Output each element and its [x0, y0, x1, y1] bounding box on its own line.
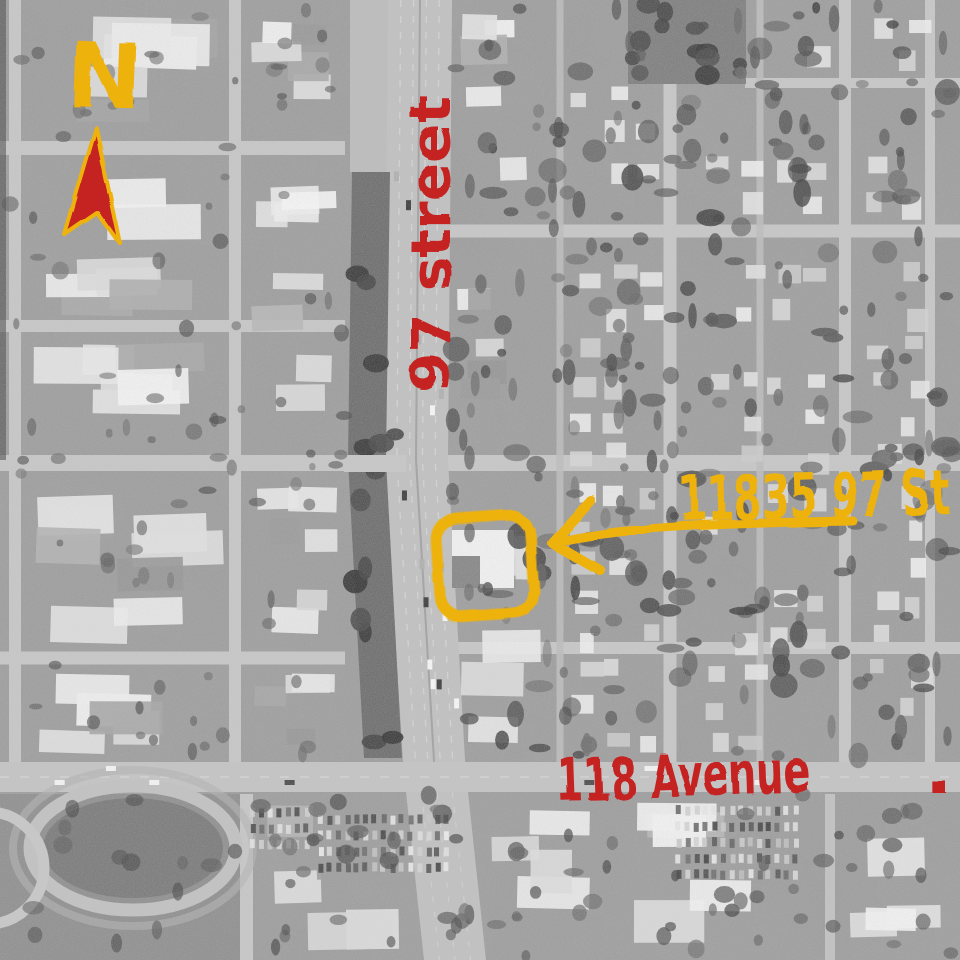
map-canvas: N 97 street 11835 97 St 118 Avenue . — [0, 0, 960, 960]
street-97-label: 97 street — [398, 95, 463, 393]
address-label: 11835 97 St — [677, 457, 951, 535]
annotated-aerial-map: N 97 street 11835 97 St 118 Avenue . — [0, 0, 960, 960]
north-label: N — [65, 22, 144, 130]
avenue-118-label: 118 Avenue — [555, 736, 810, 815]
avenue-period-dot: . — [925, 726, 952, 810]
